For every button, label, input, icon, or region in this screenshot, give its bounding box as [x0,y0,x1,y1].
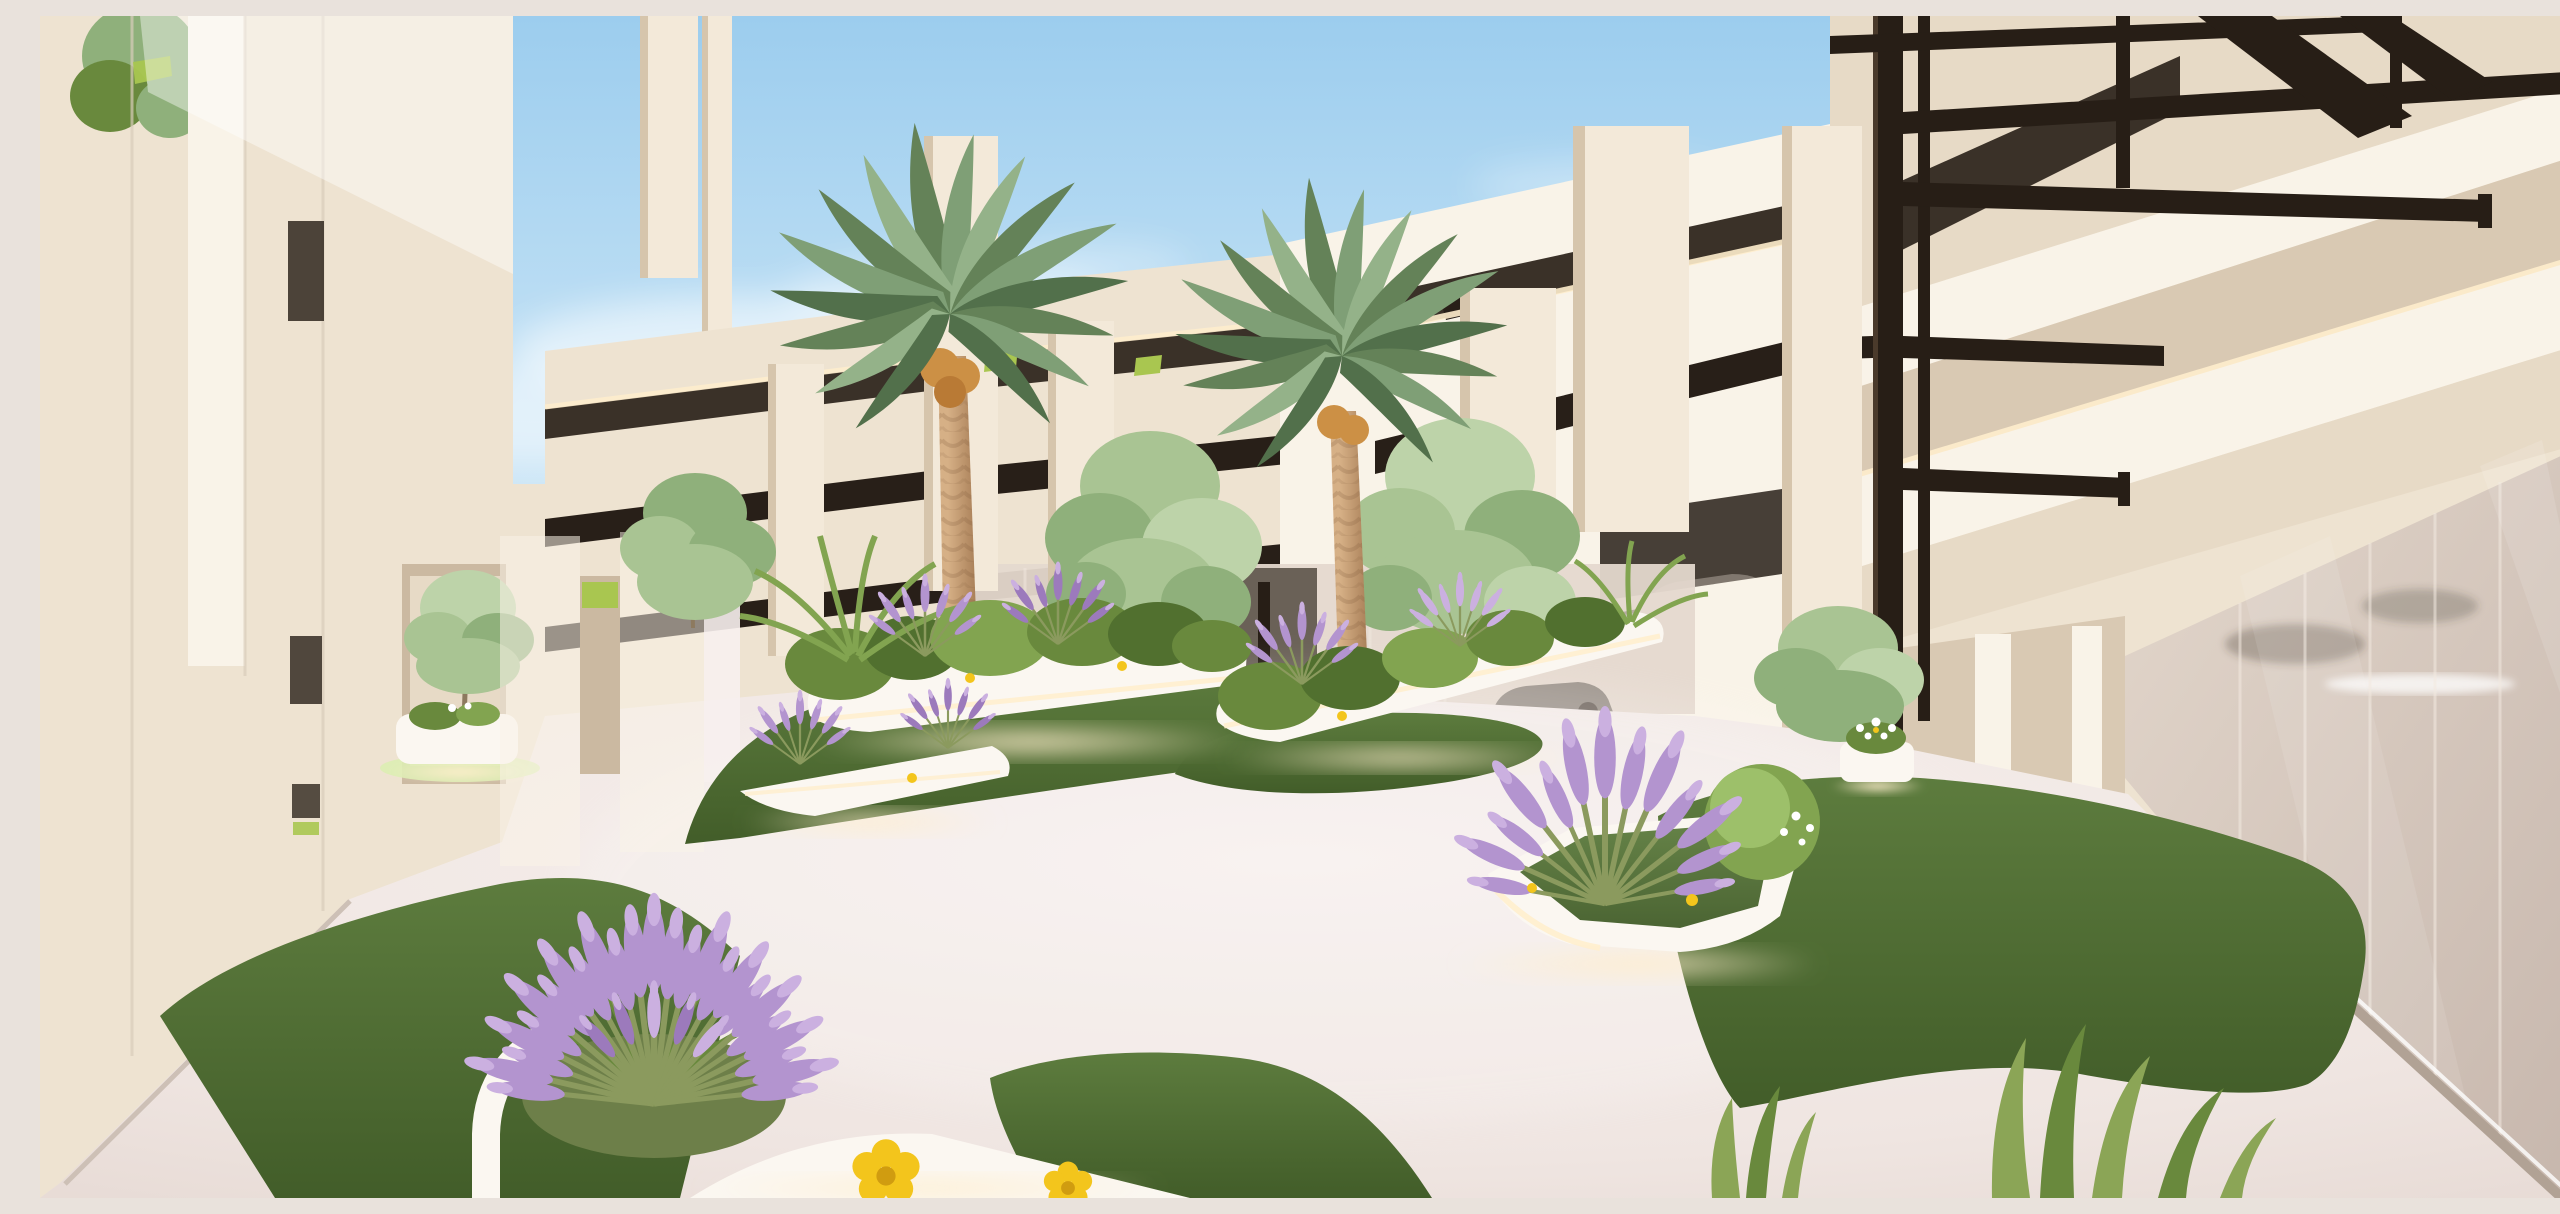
architectural-render: Daylight 3D architectural rendering of a… [40,16,2560,1198]
courtyard-render-canvas: Daylight 3D architectural rendering of a… [40,16,2560,1198]
arcade-pier [500,536,580,866]
lime-window [582,582,618,608]
